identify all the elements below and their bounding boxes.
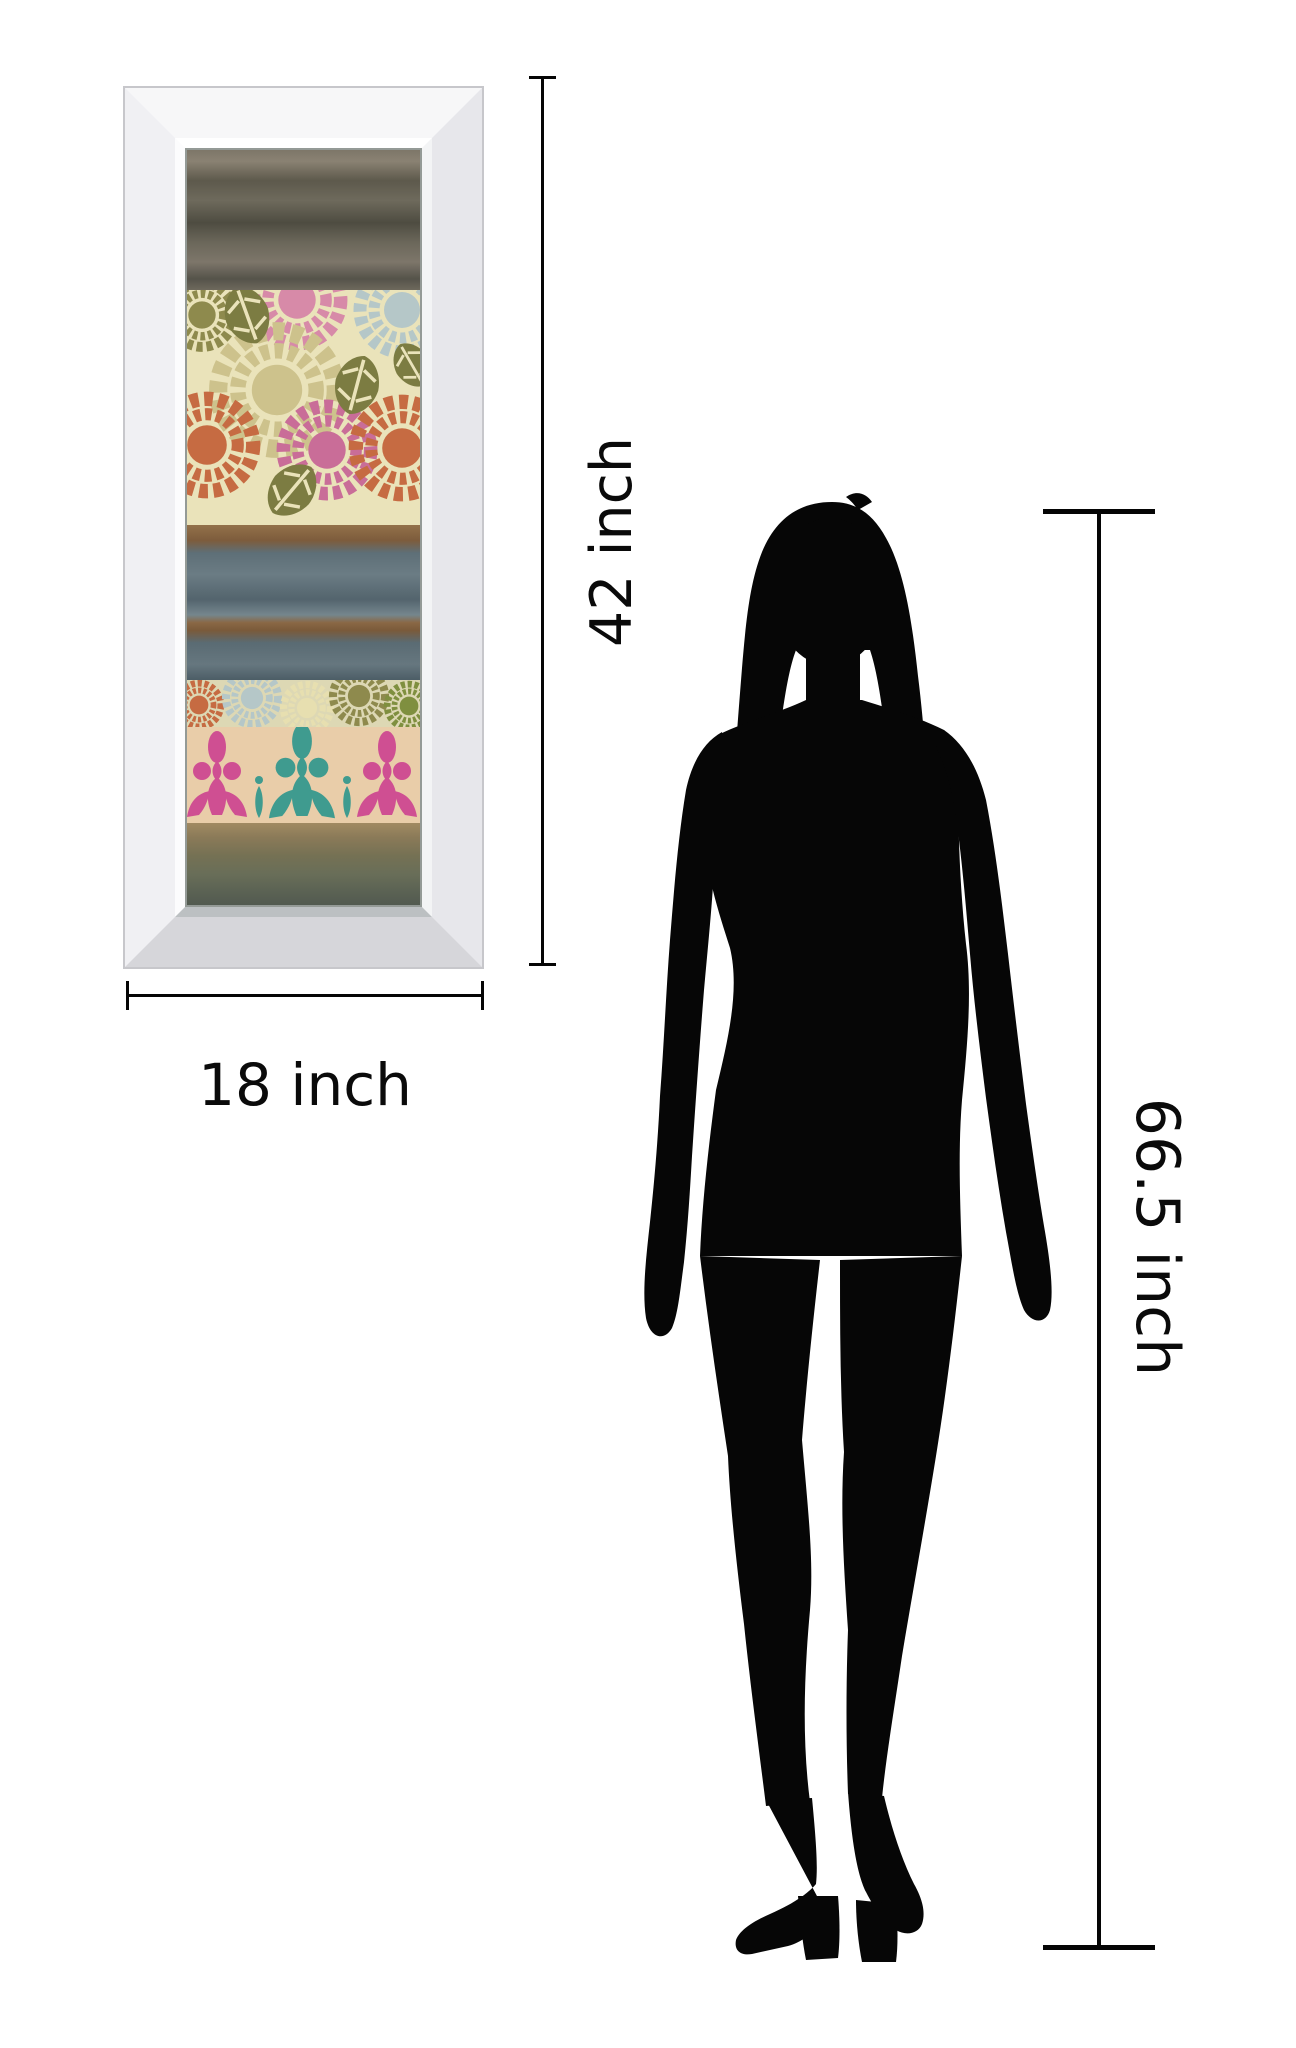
frame-height-label: 42 inch <box>582 427 642 657</box>
person-height-top-tick <box>1043 509 1155 514</box>
person-height-dimension-line <box>1097 512 1101 1949</box>
mirror-frame <box>125 88 482 967</box>
frame-height-dimension-line <box>541 78 544 966</box>
frame-width-dimension-line <box>128 994 483 997</box>
artwork-graphic <box>187 150 420 905</box>
frame-width-left-tick <box>126 981 129 1010</box>
person-height-bottom-tick <box>1043 1945 1155 1950</box>
frame-height-top-tick <box>529 76 556 79</box>
person-height-label: 66.5 inch <box>1127 1077 1187 1397</box>
frame-inner-bevel <box>175 138 432 917</box>
frame-width-right-tick <box>481 981 484 1010</box>
product-size-diagram: 42 inch 18 inch 66.5 inch <box>0 0 1296 2048</box>
frame-width-label: 18 inch <box>155 1053 455 1117</box>
artwork <box>187 150 420 905</box>
frame-height-bottom-tick <box>529 963 556 966</box>
